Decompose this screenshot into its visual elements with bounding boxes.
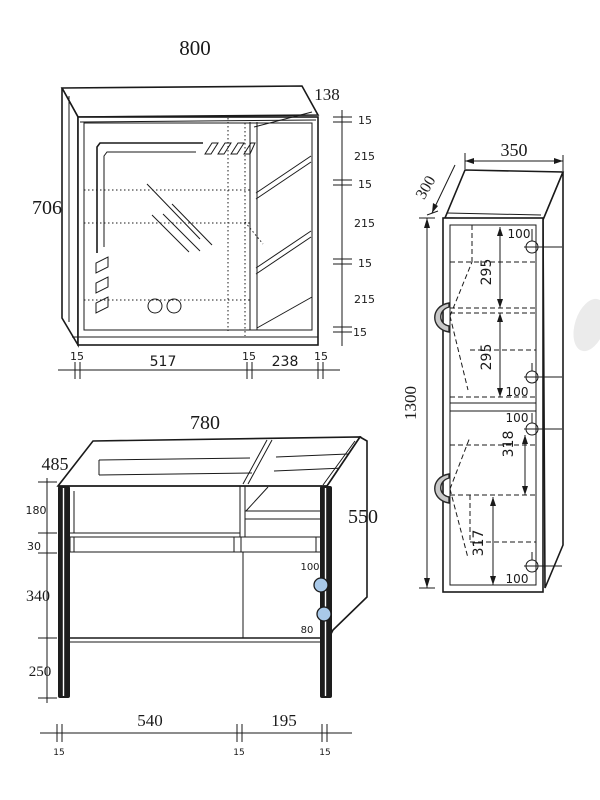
vanity-knob-top — [314, 578, 328, 592]
dim-vanity-b0: 540 — [137, 711, 163, 730]
vanity-top-opening — [58, 437, 360, 486]
dim-tall-u2: 295 — [479, 344, 495, 371]
dim-mirror-r6: 15 — [353, 326, 367, 339]
dim-vanity-hole-top: 100 — [300, 562, 319, 573]
tall-cabinet-side-panel — [543, 172, 563, 588]
vanity-front-rail — [70, 537, 321, 552]
drawing-canvas: 800 706 138 15 215 15 215 15 215 15 15 5… — [0, 0, 600, 800]
dim-vanity-l3: 250 — [29, 664, 52, 680]
dim-vanity-t0: 15 — [53, 748, 64, 758]
vanity-knob-bottom — [317, 607, 331, 621]
dim-mirror-height: 706 — [32, 197, 62, 219]
dim-vanity-l1: 30 — [27, 540, 41, 553]
dim-vanity-t2: 15 — [319, 748, 330, 758]
dim-mirror-r2: 15 — [358, 178, 372, 191]
mirror-cabinet-top-panel — [62, 86, 318, 117]
dim-vanity-t1: 15 — [233, 748, 244, 758]
tall-cabinet-drawing: 350 300 1300 100 295 295 100 100 — [401, 140, 563, 592]
dim-vanity-l0: 180 — [26, 504, 47, 517]
dim-tall-u0: 100 — [508, 227, 531, 241]
dim-tall-d1: 318 — [501, 431, 517, 458]
dim-mirror-r4: 15 — [358, 257, 372, 270]
dim-mirror-r0: 15 — [358, 114, 372, 127]
dim-mirror-width: 800 — [179, 36, 211, 60]
dim-vanity-l2: 340 — [26, 588, 50, 605]
dim-tall-d2: 317 — [471, 530, 487, 557]
dim-tall-u1: 295 — [479, 259, 495, 286]
dim-vanity-depth: 485 — [42, 454, 69, 474]
dim-tall-d0: 100 — [506, 411, 529, 425]
mirror-cabinet-left-panel — [62, 88, 78, 345]
watermark-smudge — [567, 295, 600, 356]
dim-mirror-r1: 215 — [354, 150, 375, 163]
dim-tall-height: 1300 — [401, 386, 420, 420]
dim-vanity-side-height: 550 — [348, 506, 378, 528]
dim-vanity-width: 780 — [190, 412, 220, 434]
dim-mirror-b4: 15 — [314, 350, 328, 363]
technical-drawing-sheet: 800 706 138 15 215 15 215 15 215 15 15 5… — [0, 0, 600, 800]
mirror-cabinet-drawing: 800 706 138 15 215 15 215 15 215 15 15 5… — [32, 36, 375, 379]
dim-mirror-b0: 15 — [70, 350, 84, 363]
dim-tall-u3: 100 — [506, 385, 529, 399]
dim-mirror-b2: 15 — [242, 350, 256, 363]
dim-tall-width: 350 — [501, 140, 528, 160]
dim-vanity-b1: 195 — [271, 711, 297, 730]
dim-mirror-r3: 215 — [354, 217, 375, 230]
dim-tall-depth: 300 — [413, 173, 440, 202]
dim-mirror-r5: 215 — [354, 293, 375, 306]
dim-mirror-b3: 238 — [272, 354, 299, 370]
vanity-drawing: 100 80 780 485 550 180 30 340 250 540 19… — [26, 412, 379, 758]
dim-mirror-b1: 517 — [150, 354, 177, 370]
dim-mirror-depth: 138 — [314, 85, 340, 104]
vanity-legs — [58, 486, 332, 698]
dim-vanity-hole-bottom: 80 — [301, 625, 314, 636]
dim-tall-d3: 100 — [506, 572, 529, 586]
